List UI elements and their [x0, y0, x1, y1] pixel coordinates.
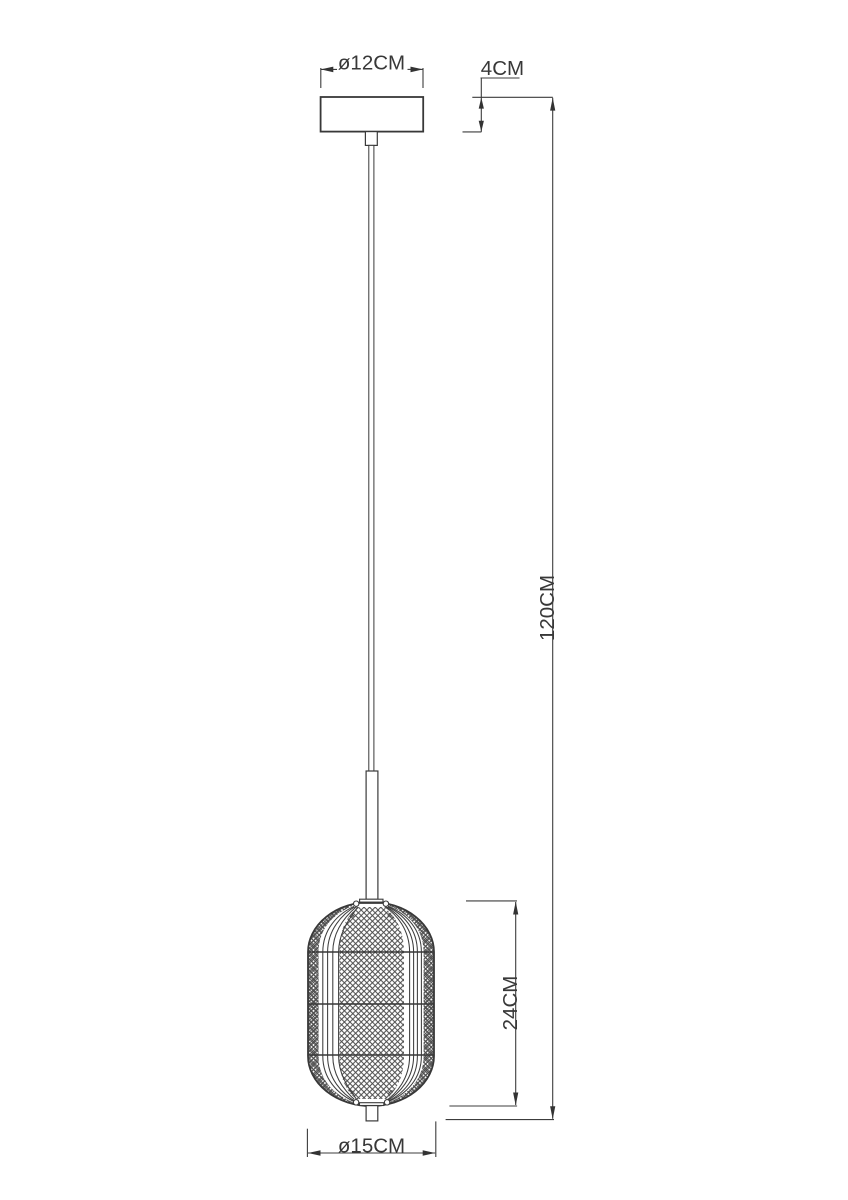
svg-text:24CM: 24CM — [499, 976, 522, 1031]
svg-text:120CM: 120CM — [536, 575, 559, 641]
svg-text:ø15CM: ø15CM — [338, 1134, 405, 1157]
svg-text:4CM: 4CM — [481, 57, 524, 80]
svg-text:ø12CM: ø12CM — [338, 52, 405, 75]
